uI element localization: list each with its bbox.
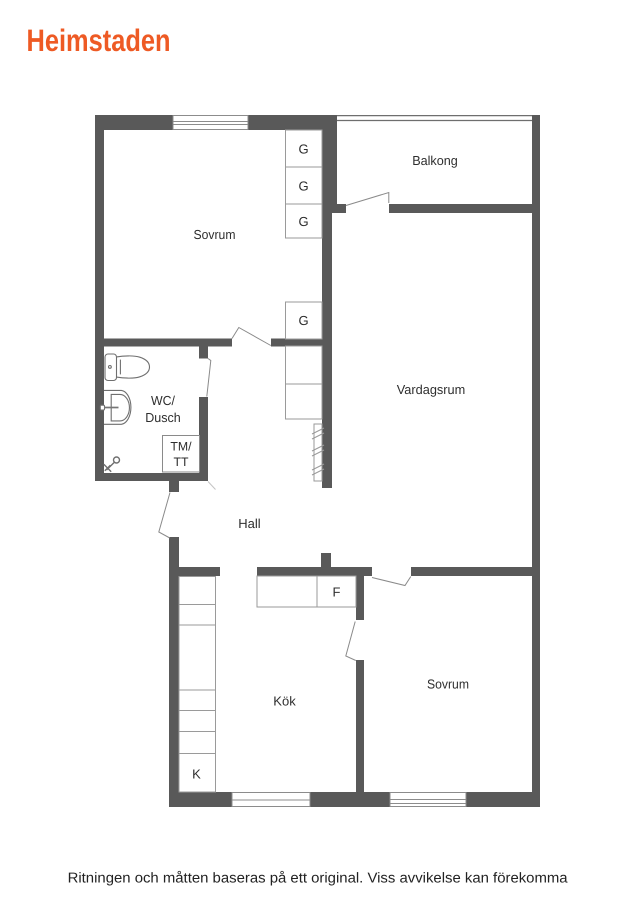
- svg-text:TM/: TM/: [170, 440, 192, 454]
- svg-text:K: K: [192, 767, 201, 782]
- svg-text:G: G: [298, 313, 308, 328]
- svg-text:Ritningen och måtten baseras p: Ritningen och måtten baseras på ett orig…: [68, 871, 568, 887]
- svg-text:Vardagsrum: Vardagsrum: [397, 382, 466, 397]
- svg-text:Dusch: Dusch: [145, 410, 181, 425]
- svg-text:F: F: [333, 585, 341, 600]
- svg-text:Balkong: Balkong: [412, 153, 458, 168]
- svg-text:TT: TT: [173, 455, 189, 469]
- svg-text:Heimstaden: Heimstaden: [27, 23, 171, 58]
- svg-text:G: G: [298, 179, 308, 194]
- svg-text:G: G: [298, 142, 308, 157]
- svg-text:Hall: Hall: [238, 516, 261, 531]
- svg-text:G: G: [298, 214, 308, 229]
- svg-text:Kök: Kök: [273, 694, 296, 709]
- svg-text:WC/: WC/: [151, 393, 175, 408]
- svg-text:Sovrum: Sovrum: [194, 227, 236, 242]
- svg-text:Sovrum: Sovrum: [427, 677, 469, 692]
